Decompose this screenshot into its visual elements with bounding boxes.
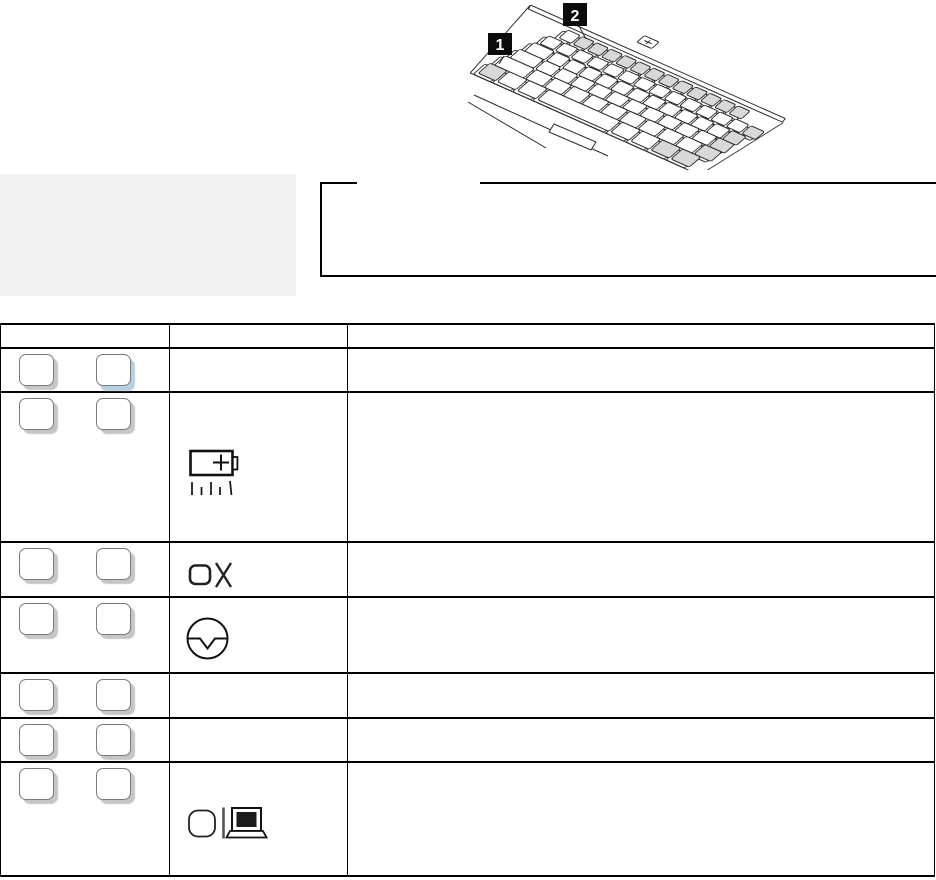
function-keycap — [96, 679, 131, 711]
manual-page: { "page": { "background": "#ffffff" }, "… — [0, 0, 936, 880]
fn-keycap — [19, 398, 54, 430]
function-keycap — [96, 603, 131, 635]
table-row — [1, 392, 935, 542]
fn-keycap — [19, 724, 54, 756]
table-row — [1, 348, 935, 392]
fn-keycap — [19, 354, 54, 386]
callout-2-label: 2 — [571, 8, 580, 25]
fn-keycap — [19, 768, 54, 800]
table-row — [1, 762, 935, 876]
keyboard-figure: 1 2 — [460, 0, 936, 170]
fn-key-table — [0, 323, 935, 877]
header-cell-description — [348, 324, 935, 348]
external-monitor-glyph — [189, 811, 215, 837]
fn-keycap — [19, 548, 54, 580]
description-cell — [348, 348, 935, 392]
fn-keycap — [19, 679, 54, 711]
header-cell-icon — [170, 324, 348, 348]
outlined-note-box — [320, 182, 936, 277]
function-keycap — [96, 354, 131, 386]
standby-icon — [185, 617, 231, 663]
display-switch-icon — [187, 804, 271, 842]
screen-blank-icon — [188, 561, 236, 589]
table-header-row — [1, 324, 935, 348]
description-cell — [348, 762, 935, 876]
function-keycap — [96, 548, 131, 580]
table-row — [1, 597, 935, 673]
laptop-glyph — [227, 808, 267, 838]
description-cell — [348, 718, 935, 762]
header-cell-keys — [1, 324, 170, 348]
outlined-box-border-segment — [480, 182, 936, 184]
battery-icon — [189, 449, 241, 497]
gray-note-box — [0, 174, 296, 296]
table-row — [1, 673, 935, 718]
table-row — [1, 718, 935, 762]
function-keycap — [96, 398, 131, 430]
description-cell — [348, 673, 935, 718]
table-row — [1, 542, 935, 597]
callout-1-label: 1 — [496, 37, 505, 54]
description-cell — [348, 392, 935, 542]
outlined-box-border-segment — [322, 182, 357, 184]
fn-keycap — [19, 603, 54, 635]
description-cell — [348, 542, 935, 597]
description-cell — [348, 597, 935, 673]
function-keycap — [96, 768, 131, 800]
function-keycap — [96, 724, 131, 756]
